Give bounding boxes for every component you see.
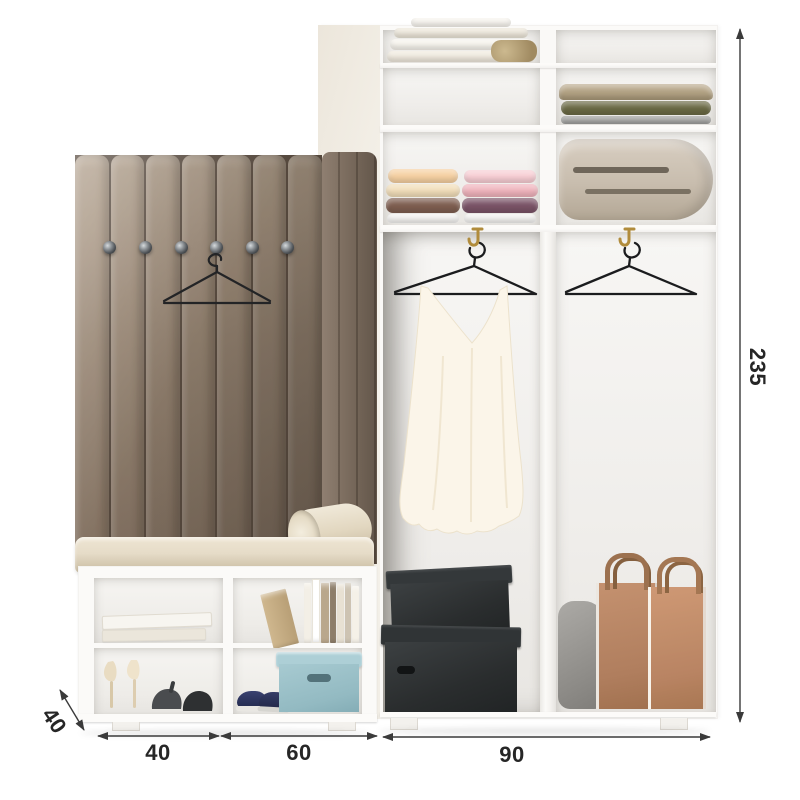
product-dimension-diagram: 40 60 90 235 40 [0,0,800,800]
wardrobe-interior [380,30,716,717]
upholstery-strip [182,155,216,555]
floor-shadow [378,728,710,734]
standing-books [257,582,359,643]
bench-cubby-shoes-box [233,648,362,714]
coat-hook-icon [281,241,294,254]
towel-stack-cream [386,168,460,223]
upholstered-side-return [322,152,377,564]
floor-shadow [80,730,370,736]
rolled-knit [491,40,537,62]
white-dress [400,286,523,534]
flat-books [102,614,214,641]
coat-hook-icon [103,241,116,254]
width-label-90: 90 [482,743,542,767]
towel-stack-pink [462,169,538,223]
teal-storage-box [279,652,359,712]
dark-heels [150,675,216,713]
shelf-cell-towels [383,132,540,225]
upholstery-strip [217,155,251,555]
box-handle-hole [397,666,415,674]
bench-foot [328,722,356,731]
upholstery-strip [288,155,322,555]
wardrobe-floor-board [380,712,716,717]
hallway-bench-unit [60,148,378,730]
shelf-cell-empty-2 [383,68,540,125]
width-label-40: 40 [128,741,188,765]
folded-blankets [559,83,713,124]
box-handle-hole [307,674,331,682]
black-storage-box-bottom [385,626,517,712]
bench-cubby-books-standing [233,578,362,643]
height-label-235: 235 [745,337,769,397]
upholstery-strip [75,155,109,555]
bench-floor-board [78,714,377,722]
upholstery-strip [146,155,180,555]
shelf-cell-blankets [556,68,716,125]
center-divider-panel [540,232,556,717]
clothes-hanger-icon [395,258,536,294]
coat-hook-icon [139,241,152,254]
upholstery-strip [253,155,287,555]
shelf-cell-linens [383,30,540,63]
tan-carrier-bag [648,587,706,709]
upholstered-coat-panel [75,155,322,555]
hanging-section-left [383,232,540,712]
beige-heels [100,660,148,712]
shelf-cell-duvet [556,132,716,225]
shoe-bench [78,566,377,722]
bench-cubby-heels [94,648,223,714]
width-label-60: 60 [269,741,329,765]
hanging-section-right [556,232,716,712]
shelf-board [380,125,716,132]
wardrobe-cabinet [318,25,718,719]
clothes-hanger-icon [566,258,696,294]
brass-rail-hook-icon [620,229,634,245]
bench-cubby-books-flat [94,578,223,643]
wall-hanger-icon [158,252,280,310]
rolled-duvet [559,139,713,220]
shelf-cell-empty-1 [556,30,716,63]
upholstery-strip [111,155,145,555]
